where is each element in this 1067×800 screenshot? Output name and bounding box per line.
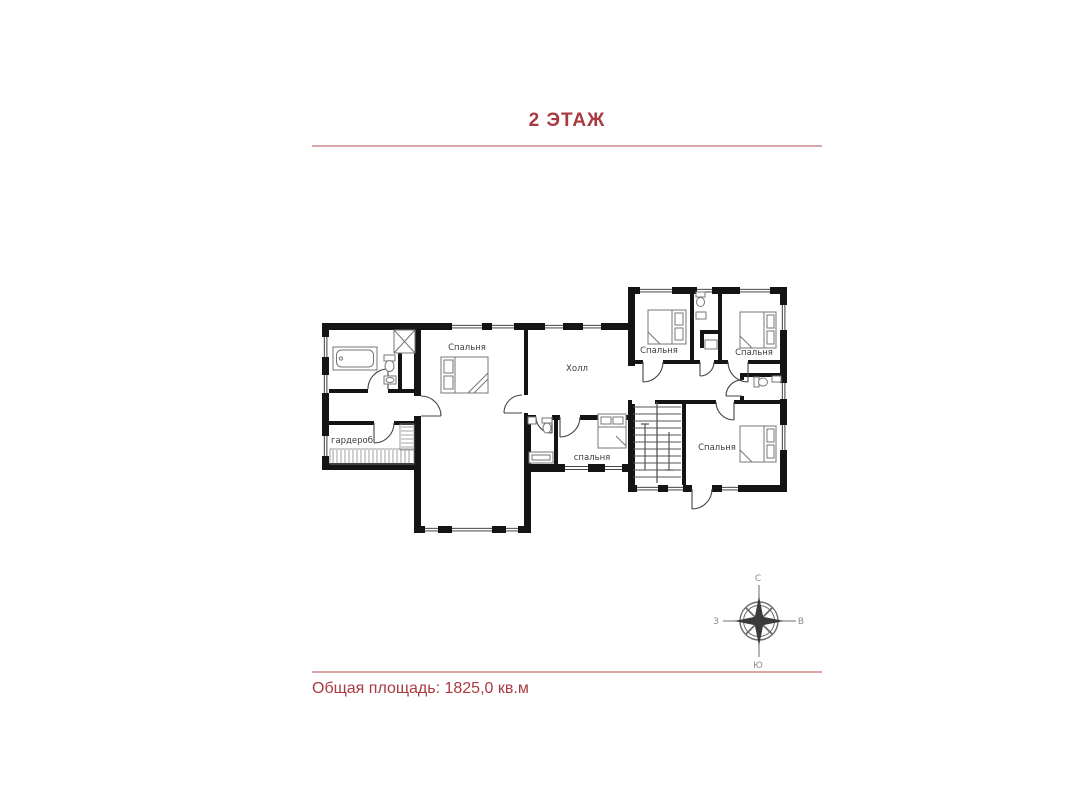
floor-plan: Спальня Холл Спальня Спальня Спальня спа… <box>0 0 1067 800</box>
compass-east-label: В <box>798 617 804 627</box>
sink-icon <box>384 376 396 384</box>
bed-icon <box>740 426 776 462</box>
bed-icon <box>598 414 626 448</box>
toilet-icon <box>384 355 395 372</box>
room-label-bedroom-se: Спальня <box>698 443 736 453</box>
bed-icon <box>441 357 488 393</box>
sink-icon <box>528 417 553 463</box>
total-area-text: Общая площадь: 1825,0 кв.м <box>312 680 529 698</box>
compass-south-label: Ю <box>753 661 763 671</box>
toilet-icon <box>754 376 781 387</box>
compass-rose: С Ю З В <box>713 574 804 671</box>
stairs-icon <box>633 402 681 483</box>
compass-west-label: З <box>713 617 719 627</box>
bed-icon <box>648 310 686 344</box>
compass-north-label: С <box>755 574 761 584</box>
room-label-bedroom-ne-left: Спальня <box>640 346 678 356</box>
room-label-wardrobe: гардероб <box>331 436 373 446</box>
room-label-bedroom-ne-right: Спальня <box>735 348 773 358</box>
room-label-bedroom-top: Спальня <box>448 343 486 353</box>
bed-icon <box>740 312 776 348</box>
toilet-icon <box>696 292 717 349</box>
bathtub-icon <box>333 347 377 370</box>
shower-icon <box>394 330 415 353</box>
footer-divider <box>312 671 822 673</box>
room-label-hall: Холл <box>566 364 588 374</box>
room-label-bedroom-small: спальня <box>574 453 611 463</box>
